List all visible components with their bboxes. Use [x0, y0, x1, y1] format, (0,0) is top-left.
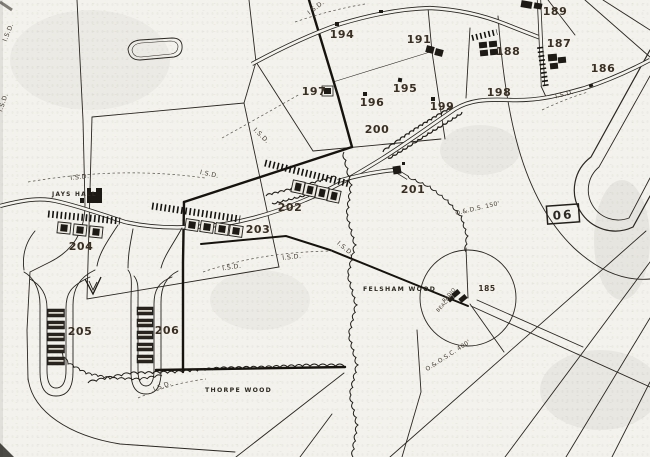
annotation-label: I.S.D. [2, 22, 16, 42]
hut-stripe [138, 310, 152, 312]
site-number-203: 203 [246, 223, 270, 236]
annotation-label: I.S.D. [282, 253, 302, 262]
annotation-label: I.S.D. [555, 89, 575, 100]
boundary-line [585, 0, 650, 57]
hut-stripe [138, 346, 152, 348]
place-name-felsham-wood: FELSHAM WOOD [363, 286, 436, 293]
site-number-204: 204 [69, 240, 93, 253]
hut-stripe [49, 360, 64, 362]
site-number-199: 199 [430, 100, 454, 113]
felsham-wood-edge [343, 152, 358, 457]
hut-stripe [49, 348, 64, 350]
building-189 [520, 0, 532, 9]
boundary-line [28, 378, 235, 452]
barrack-202 [291, 180, 305, 194]
loop-connector [161, 228, 182, 268]
barrack-204 [89, 226, 103, 238]
boundary-line [244, 0, 256, 103]
hut-stripe [49, 312, 64, 314]
barrack-202 [327, 189, 341, 203]
hut-stripe [138, 334, 152, 336]
building-188 [479, 42, 487, 49]
site-number-195: 195 [393, 82, 417, 95]
hut-strip-202 [265, 163, 350, 184]
site-number-197: 197 [302, 85, 326, 98]
contour [138, 379, 206, 398]
annotation-label: I.S.D. [222, 263, 242, 273]
site-number-186: 186 [591, 62, 615, 75]
marker-194 [335, 22, 339, 26]
site-number-188: 188 [496, 45, 520, 58]
barrack-203 [185, 219, 199, 232]
site-number-205: 205 [68, 325, 92, 338]
boundary-line [300, 414, 332, 457]
hut-stripe [138, 358, 152, 360]
hut-strip-203 [152, 206, 240, 219]
site-number-198: 198 [487, 86, 511, 99]
marker-201 [402, 162, 405, 165]
boundary-line [466, 28, 470, 98]
hut-stripe [138, 322, 152, 324]
scanned-airfield-site-map: 06 1851861871881891911941951961971981992… [0, 0, 650, 457]
annotation-label: I.S.D. [0, 92, 10, 112]
thorpe-wood-edge-west [58, 350, 162, 380]
site-number-194: 194 [330, 28, 354, 41]
boundary-line [236, 373, 344, 457]
boundary-line [333, 52, 430, 82]
map-canvas: 06 1851861871881891911941951961971981992… [0, 0, 650, 457]
barrack-203 [200, 221, 214, 234]
survey-line [470, 304, 504, 352]
annotation-label: I.S.D. [252, 127, 271, 145]
contour [28, 173, 205, 182]
annotation-label: I.S.D. [70, 173, 90, 182]
site-number-187: 187 [547, 37, 571, 50]
survey-line [477, 300, 583, 347]
building-191 [434, 48, 444, 57]
hut-stripe [49, 336, 64, 338]
barrack-204 [57, 222, 71, 234]
barrack-202 [315, 186, 329, 200]
boundary-line [313, 139, 441, 151]
annotation-label: O.&.D.S. 150' [455, 200, 501, 217]
annotation-label: I.S.D. [199, 169, 219, 180]
site-number-196: 196 [360, 96, 384, 109]
barrack-203 [229, 225, 243, 238]
survey-line [466, 248, 468, 298]
loop-connector [128, 229, 133, 268]
site-number-200: 200 [365, 123, 389, 136]
jays-hall-outbuilding [80, 198, 84, 203]
hut-strip-188 [472, 32, 497, 38]
building-201 [392, 165, 401, 174]
barrack-203 [215, 223, 229, 236]
runway-number: 06 [552, 207, 574, 222]
site-number-191: 191 [407, 33, 431, 46]
building-187 [550, 63, 558, 70]
building-191 [425, 45, 435, 54]
building-187 [548, 54, 558, 62]
loop-connector [23, 231, 35, 270]
barrack-204 [73, 224, 87, 236]
annotation-label: O.&.O.S.C. 400' [424, 339, 472, 373]
site-number-185: 185 [478, 284, 495, 293]
place-name-jays-hall: JAYS HALL [51, 192, 97, 198]
site-number-189: 189 [543, 5, 567, 18]
boundary-line [603, 0, 650, 30]
place-name-thorpe-wood: THORPE WOOD [205, 387, 272, 394]
site-number-201: 201 [401, 183, 425, 196]
site-number-202: 202 [278, 201, 302, 214]
site-number-206: 206 [155, 324, 179, 337]
barrack-202 [303, 183, 317, 197]
annotation-label: I.S.D. [152, 380, 172, 393]
hut-stripe [49, 324, 64, 326]
building-187 [558, 57, 566, 64]
marker-194 [379, 10, 383, 13]
building-188 [480, 50, 488, 57]
